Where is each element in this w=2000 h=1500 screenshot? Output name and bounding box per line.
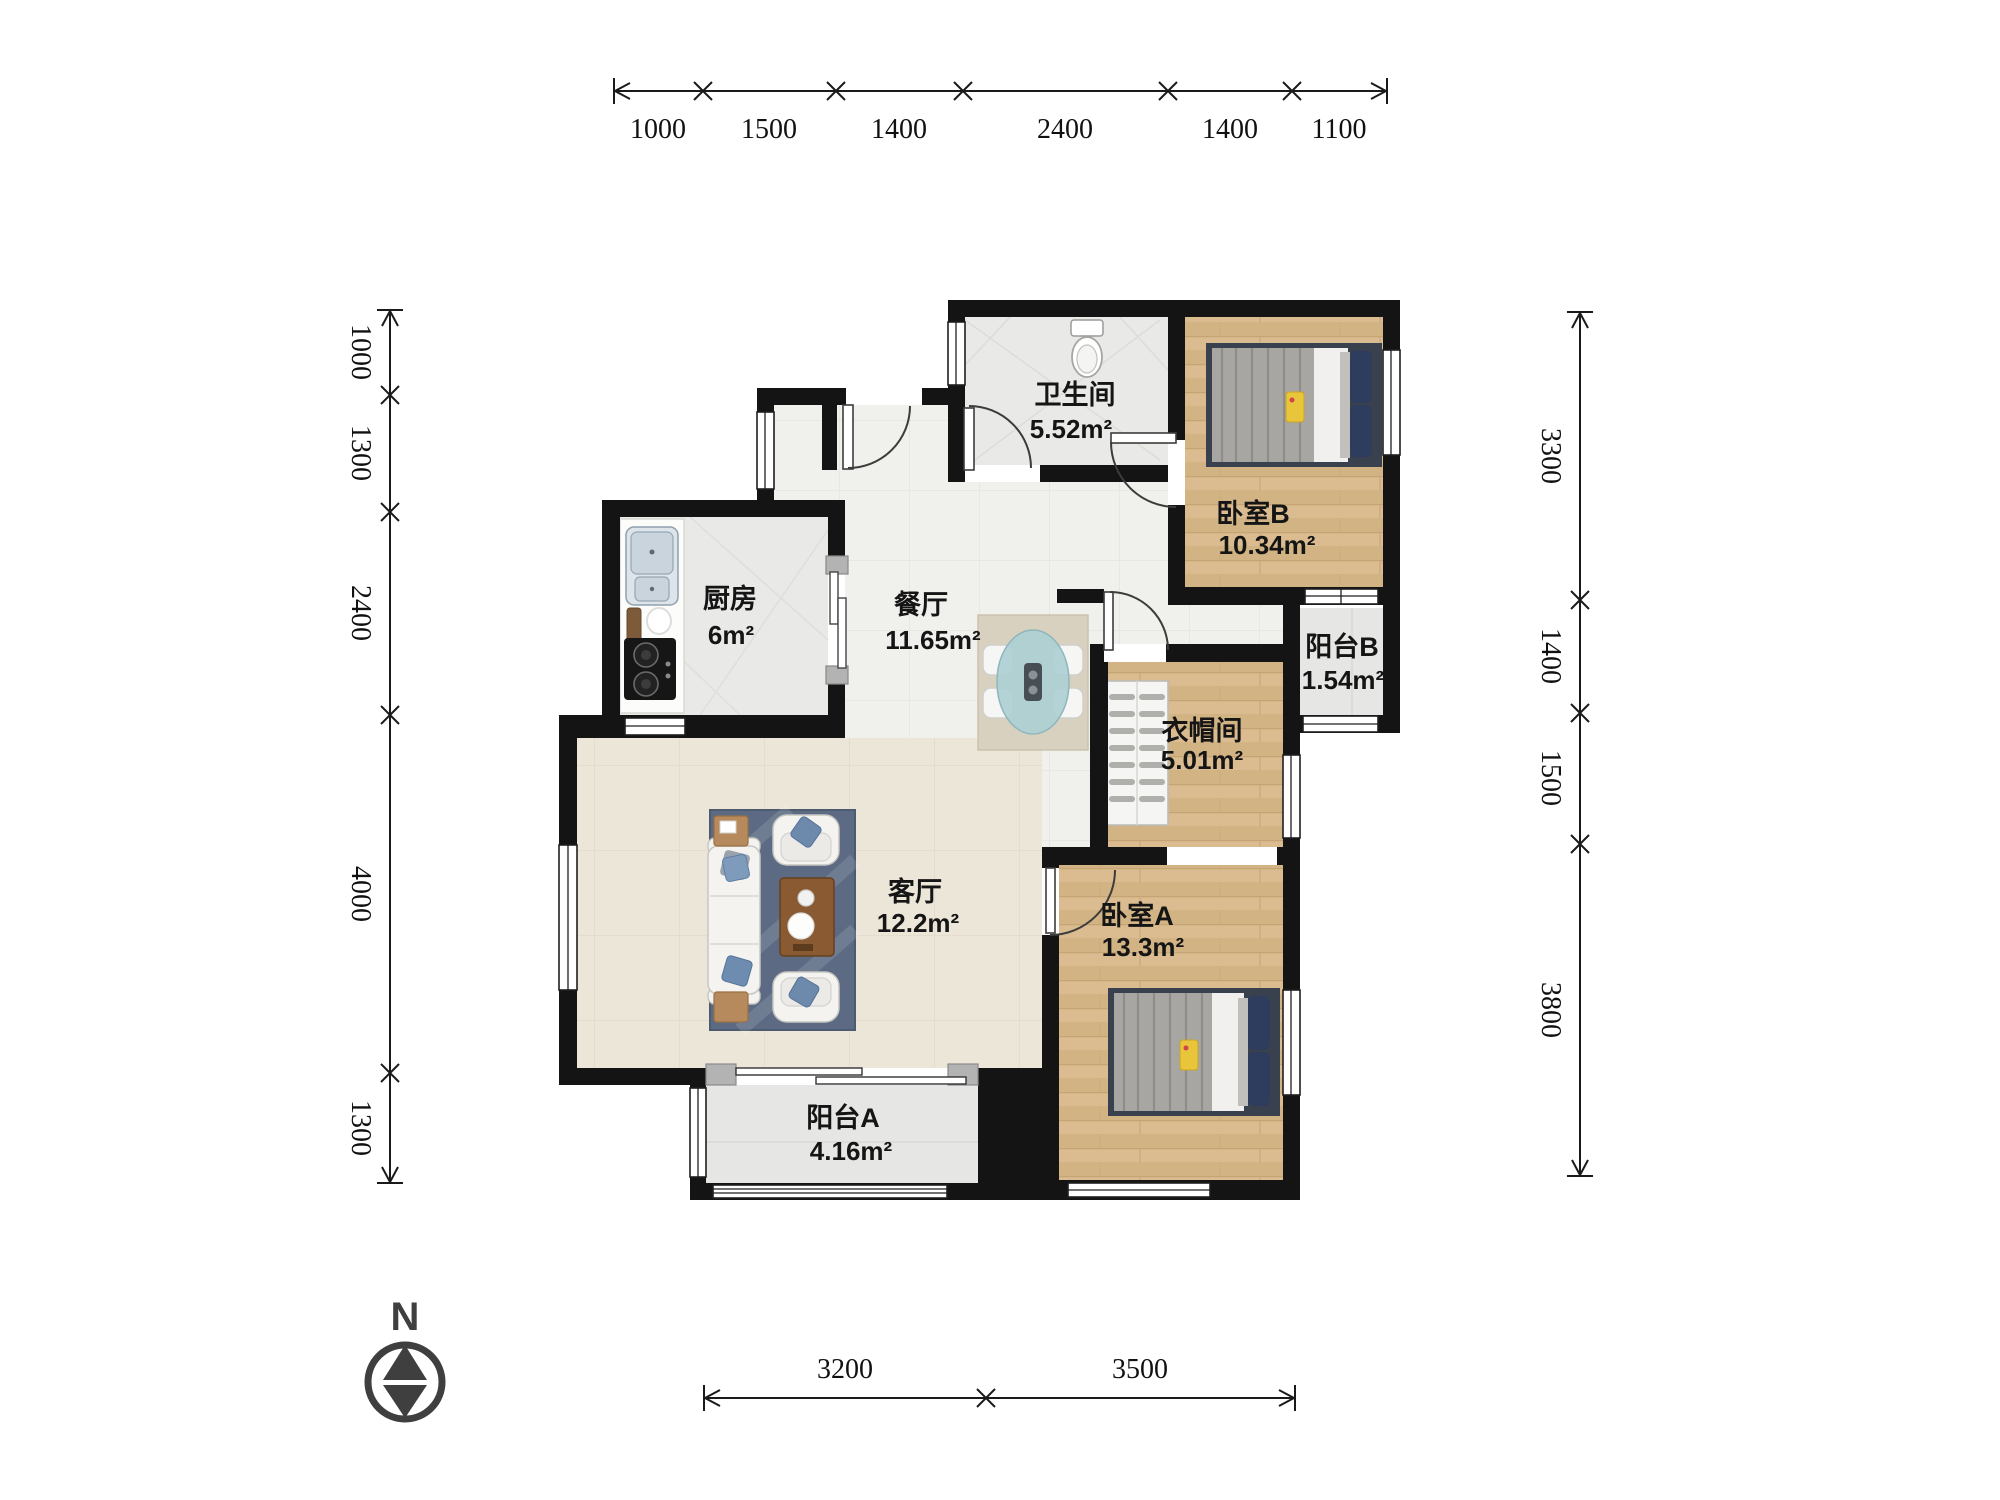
dim-top-3: 2400 (1037, 114, 1093, 145)
floor-plan: 卫生间 5.52m² 卧室B 10.34m² 厨房 6m² 餐厅 11.65m²… (0, 0, 2000, 1500)
room-name-dining: 餐厅 (894, 590, 948, 620)
stove-icon (624, 638, 676, 700)
room-area-dining: 11.65m² (885, 625, 981, 655)
room-area-living: 12.2m² (877, 908, 960, 938)
room-area-balcony-b: 1.54m² (1302, 665, 1385, 695)
balcony-a-floor (706, 1085, 978, 1183)
room-area-kitchen: 6m² (708, 620, 755, 650)
window-icon (713, 1185, 947, 1198)
room-name-bathroom: 卫生间 (1035, 380, 1116, 410)
north-label: N (391, 1295, 420, 1339)
dimension-left: 1000 1300 2400 4000 1300 (345, 310, 403, 1183)
armchair-icon (773, 815, 839, 865)
living-set (708, 810, 855, 1030)
side-table-icon (714, 992, 748, 1022)
dim-left-3: 4000 (345, 866, 376, 922)
dim-right-2: 1500 (1535, 750, 1566, 806)
north-compass-icon: N (368, 1295, 442, 1419)
dim-top-4: 1400 (1202, 114, 1258, 145)
dim-bottom-0: 3200 (817, 1354, 873, 1385)
room-name-cloakroom: 衣帽间 (1162, 715, 1243, 746)
dim-left-0: 1000 (345, 324, 376, 380)
room-area-bathroom: 5.52m² (1030, 414, 1113, 444)
room-area-cloakroom: 5.01m² (1161, 745, 1244, 775)
wardrobe-icon (1106, 681, 1168, 825)
room-name-balcony-a: 阳台A (806, 1102, 880, 1133)
room-area-balcony-a: 4.16m² (810, 1136, 893, 1166)
dim-top-5: 1100 (1312, 114, 1367, 145)
coffee-table-icon (780, 878, 834, 956)
room-name-kitchen: 厨房 (703, 584, 757, 614)
dim-bottom-1: 3500 (1112, 1354, 1168, 1385)
balcony-b-door-window-icon (1305, 589, 1378, 604)
room-name-living: 客厅 (888, 876, 942, 907)
window-icon (1283, 755, 1300, 838)
window-icon (559, 845, 577, 990)
bed-icon (1206, 343, 1382, 467)
room-area-bedroom-b: 10.34m² (1219, 530, 1316, 560)
window-icon (948, 322, 965, 385)
window-icon (1068, 1183, 1210, 1197)
bed-icon (1108, 988, 1280, 1116)
dim-top-1: 1500 (741, 114, 797, 145)
hall-floor (948, 482, 1168, 512)
room-name-bedroom-a: 卧室A (1100, 900, 1174, 931)
dimension-top: 1000 1500 1400 2400 1400 1100 (614, 78, 1387, 145)
dim-left-2: 2400 (345, 585, 376, 641)
dim-right-3: 3800 (1535, 982, 1566, 1038)
window-icon (1303, 716, 1378, 732)
room-name-balcony-b: 阳台B (1305, 631, 1379, 662)
room-area-bedroom-a: 13.3m² (1102, 932, 1185, 962)
window-icon (757, 412, 774, 489)
window-icon (625, 718, 685, 735)
dimension-bottom: 3200 3500 (704, 1354, 1295, 1411)
hall-floor (774, 405, 948, 505)
dim-top-0: 1000 (630, 114, 686, 145)
dining-table-icon (978, 615, 1088, 750)
armchair-icon (773, 972, 839, 1022)
window-icon (1283, 990, 1300, 1095)
toilet-icon (1071, 320, 1103, 377)
cutting-board-icon (627, 608, 641, 642)
dim-top-2: 1400 (871, 114, 927, 145)
window-icon (690, 1088, 706, 1177)
kitchen-sliding-door-icon (826, 556, 848, 684)
dim-right-0: 3300 (1535, 428, 1566, 484)
sofa-icon (708, 838, 760, 1004)
plate-icon (647, 608, 671, 634)
dimension-right: 3300 1400 1500 3800 (1535, 312, 1593, 1176)
dim-left-1: 1300 (345, 425, 376, 481)
dim-right-1: 1400 (1535, 628, 1566, 684)
window-icon (1383, 350, 1400, 455)
kitchen-counter (620, 519, 684, 713)
dim-left-4: 1300 (345, 1100, 376, 1156)
sink-icon (626, 527, 678, 605)
hall-floor (845, 505, 1168, 587)
side-table-icon (714, 816, 748, 846)
room-name-bedroom-b: 卧室B (1216, 498, 1290, 529)
